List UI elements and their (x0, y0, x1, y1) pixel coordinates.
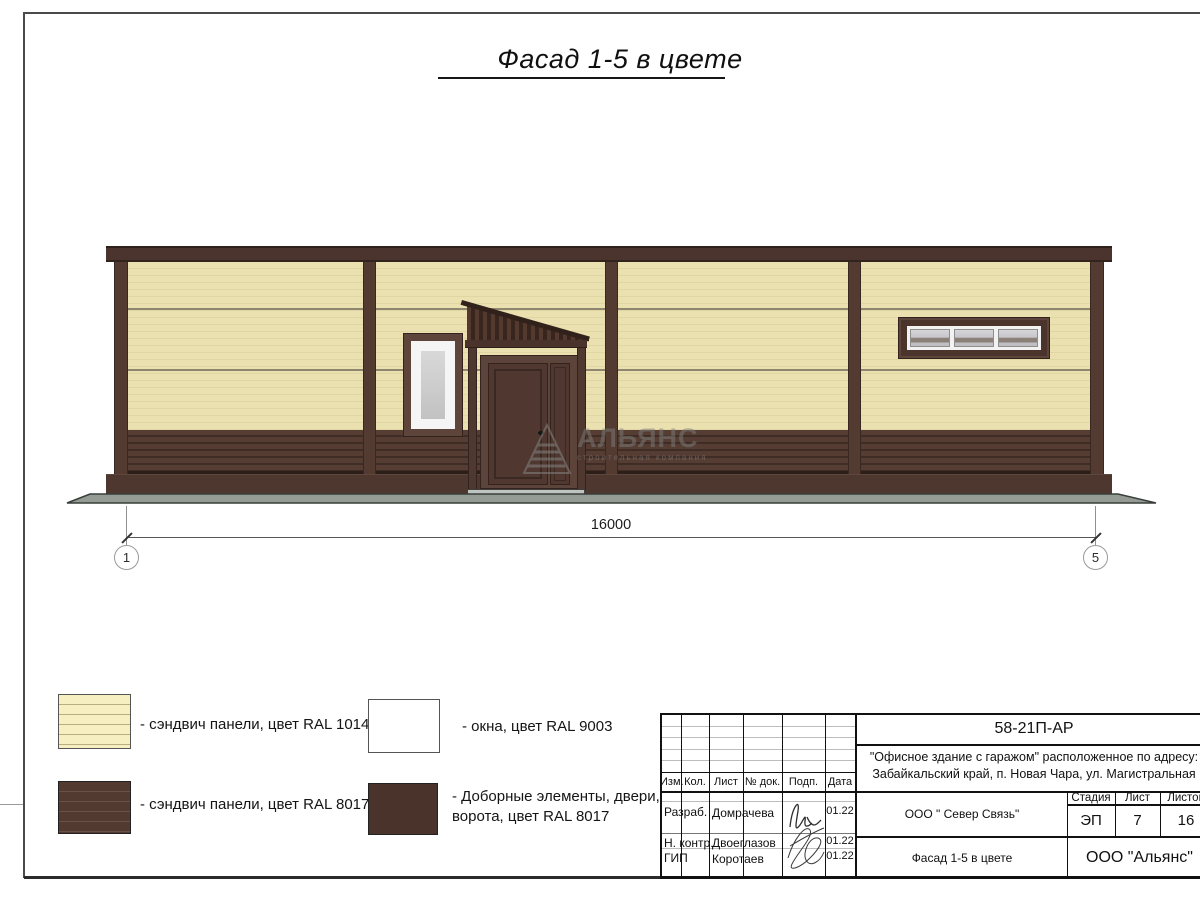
legend-label: ворота, цвет RAL 8017 (452, 808, 609, 825)
canopy-post-left (468, 348, 477, 490)
stamp-sheets-label: Листов (1160, 792, 1200, 804)
company-watermark: АЛЬЯНС строительная компания (522, 423, 708, 475)
stamp-sheet-label: Лист (1115, 792, 1160, 804)
legend-swatch-ral9003 (368, 699, 440, 753)
dimension-value: 16000 (561, 517, 661, 533)
stamp-company: ООО "Альянс" (1067, 849, 1200, 867)
canopy-beam (465, 340, 587, 348)
stamp-line (709, 713, 710, 878)
stamp-line (855, 836, 1200, 838)
legend-label: - сэндвич панели, цвет RAL 1014 (140, 716, 369, 733)
window-pane (954, 329, 994, 347)
stamp-line (660, 876, 1200, 879)
window-horizontal (898, 317, 1050, 359)
stamp-role: Н. контр. (664, 836, 714, 850)
stamp-col-data: Дата (825, 776, 855, 788)
stamp-line (1067, 804, 1200, 806)
stamp-sheet-value: 7 (1115, 812, 1160, 829)
stamp-line (855, 744, 1200, 746)
stamp-date: 01.22 (825, 835, 855, 847)
stamp-col-list: Лист (709, 776, 743, 788)
frame-left-line (23, 12, 25, 878)
stamp-stage-label: Стадия (1067, 792, 1115, 804)
dimension-line (127, 537, 1096, 538)
signature-icon (780, 818, 828, 876)
stamp-sheets-value: 16 (1160, 812, 1200, 829)
legend-swatch-ral8017-elements (368, 783, 438, 835)
stamp-address-line2: Забайкальский край, п. Новая Чара, ул. М… (858, 767, 1200, 781)
frame-top-line (24, 12, 1200, 14)
window-vertical (403, 333, 463, 437)
dimension-tick-left (121, 532, 132, 543)
window-pane (910, 329, 950, 347)
stamp-date: 01.22 (825, 805, 855, 817)
stamp-address-line1: "Офисное здание с гаражом" расположенное… (858, 750, 1200, 764)
alliance-triangle-logo-icon (522, 423, 572, 475)
corner-post-left (114, 262, 128, 474)
legend-label: - Доборные элементы, двери, (452, 788, 660, 805)
stamp-name: Домрачева (712, 806, 774, 820)
axis-marker-5: 5 (1083, 545, 1108, 570)
corner-post-right (1090, 262, 1104, 474)
stamp-col-kol: Кол. (681, 776, 709, 788)
stamp-line (660, 713, 662, 879)
stamp-line (660, 772, 856, 773)
ground-line (60, 490, 1165, 508)
drawing-sheet: Фасад 1-5 в цвете (0, 0, 1200, 900)
legend-swatch-ral1014 (58, 694, 131, 749)
stamp-col-doc: № док. (743, 776, 782, 788)
legend-label: - сэндвич панели, цвет RAL 8017 (140, 796, 369, 813)
stamp-org-center: ООО " Север Связь" (857, 807, 1067, 821)
stamp-date: 01.22 (825, 850, 855, 862)
axis-label: 5 (1092, 550, 1099, 565)
page-title: Фасад 1-5 в цвете (460, 44, 780, 75)
stamp-col-podp: Подп. (782, 776, 825, 788)
legend-swatch-ral8017-panels (58, 781, 131, 834)
title-underline (438, 77, 725, 79)
watermark-name: АЛЬЯНС (577, 423, 708, 453)
facade-post (363, 262, 376, 474)
watermark-tagline: строительная компания (577, 453, 708, 462)
dimension-tick-right (1090, 532, 1101, 543)
facade-parapet (106, 246, 1112, 262)
stamp-stage-value: ЭП (1067, 812, 1115, 829)
stamp-role: ГИП (664, 851, 688, 865)
stamp-sheet-title: Фасад 1-5 в цвете (857, 851, 1067, 865)
facade-post (848, 262, 861, 474)
stamp-doc-number: 58-21П-АР (856, 720, 1200, 738)
stamp-name: Двоеглазов (712, 836, 776, 850)
window-frame (907, 326, 1041, 350)
window-glass (421, 351, 445, 419)
stamp-line (660, 713, 1200, 715)
margin-divider-line (0, 804, 23, 805)
stamp-col-izm: Изм. (660, 776, 681, 788)
stamp-name: Коротаев (712, 852, 764, 866)
stamp-role: Разраб. (664, 805, 707, 819)
legend-label: - окна, цвет RAL 9003 (462, 718, 612, 735)
axis-label: 1 (123, 550, 130, 565)
window-frame (411, 341, 455, 429)
axis-marker-1: 1 (114, 545, 139, 570)
window-pane (998, 329, 1038, 347)
